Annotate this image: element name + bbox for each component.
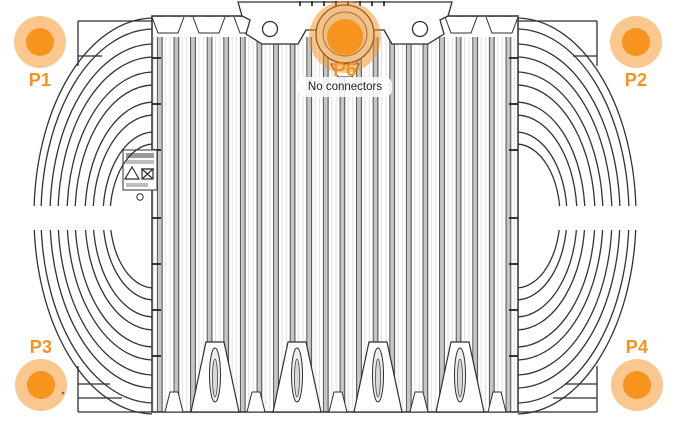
marker-label: P4 [626, 338, 648, 356]
marker-dot [623, 371, 651, 399]
connector-marker-p4[interactable]: P4 [611, 338, 663, 411]
marker-dot [622, 28, 650, 56]
bolt-hole-left [263, 22, 278, 37]
marker-label: P6 [333, 61, 357, 80]
marker-halo[interactable] [610, 16, 662, 68]
marker-label: P3 [30, 338, 52, 356]
marker-halo[interactable] [15, 359, 67, 411]
marker-label: P2 [625, 71, 647, 89]
connector-marker-p2[interactable]: P2 [610, 16, 662, 89]
marker-dot [27, 371, 55, 399]
connector-marker-p1[interactable]: P1 [14, 16, 66, 89]
connector-map: P1 P2 P3 P4 P6 No connectors [0, 0, 675, 429]
marker-halo[interactable] [611, 359, 663, 411]
marker-label: P1 [29, 71, 51, 89]
marker-halo[interactable] [14, 16, 66, 68]
marker-dot [26, 28, 54, 56]
bolt-hole-right [413, 22, 428, 37]
connector-marker-p6[interactable]: P6 [309, 1, 381, 80]
connector-marker-p3[interactable]: P3 [15, 338, 67, 411]
marker-dot [327, 19, 363, 55]
